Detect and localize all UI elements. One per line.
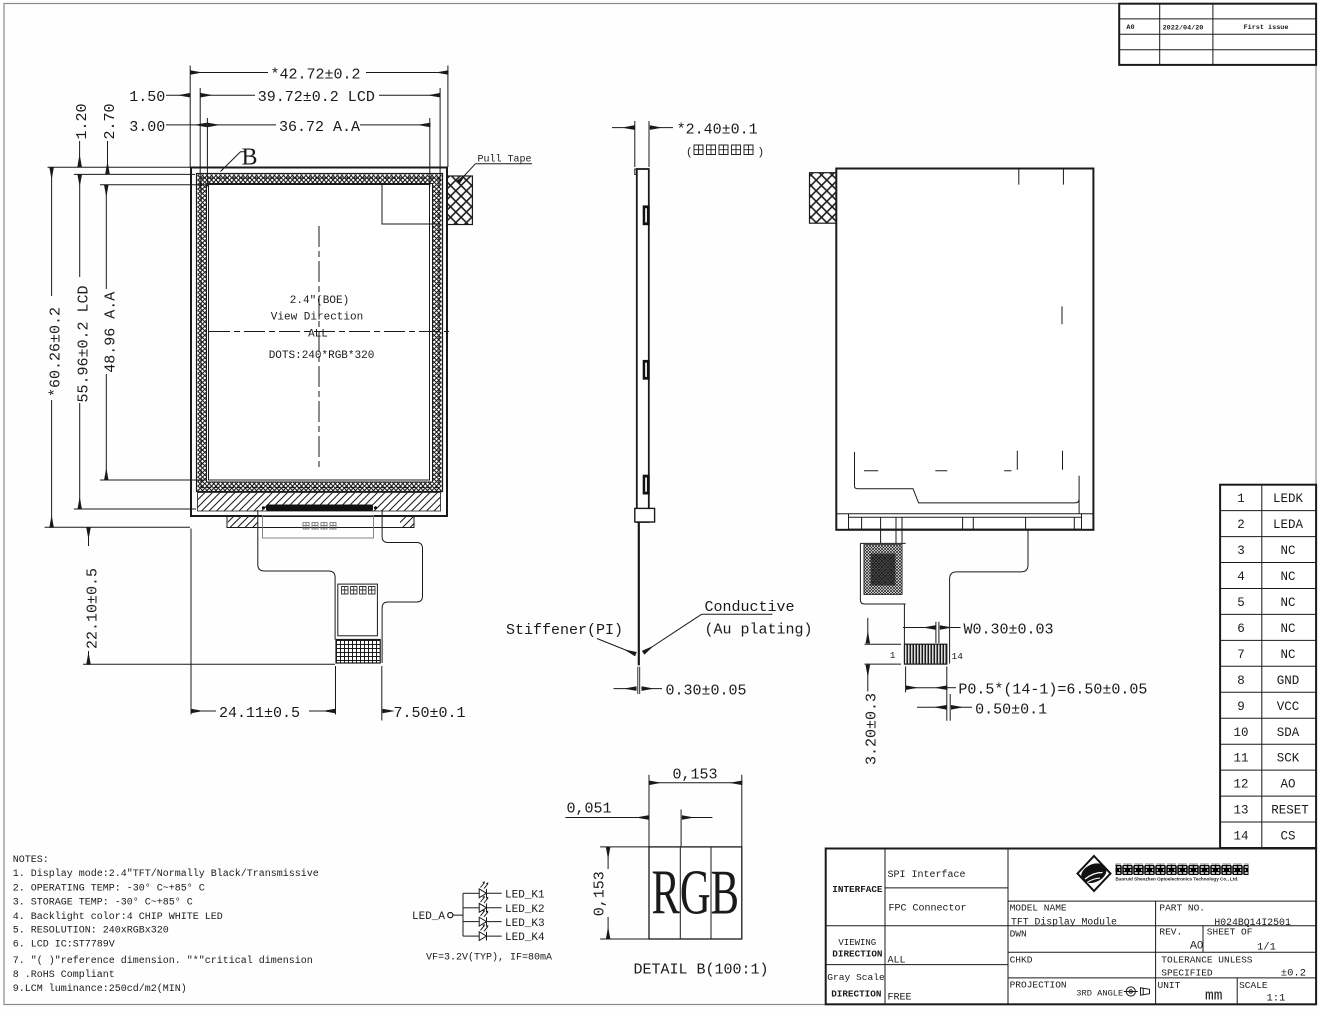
svg-text:SDA: SDA [1277, 726, 1300, 740]
svg-text:SHEET OF: SHEET OF [1207, 927, 1253, 938]
svg-text:9: 9 [1237, 700, 1245, 714]
svg-text:0,153: 0,153 [592, 871, 609, 916]
svg-text:NC: NC [1280, 622, 1295, 636]
svg-text:3.20±0.3: 3.20±0.3 [863, 693, 880, 765]
svg-text:NC: NC [1280, 648, 1295, 662]
svg-text:FREE: FREE [888, 992, 912, 1003]
svg-text:NC: NC [1280, 544, 1295, 558]
svg-text:*2.40±0.1: *2.40±0.1 [677, 122, 758, 139]
svg-text:NC: NC [1280, 570, 1295, 584]
svg-text:1.20: 1.20 [74, 103, 91, 139]
svg-text:UNIT: UNIT [1158, 980, 1181, 991]
svg-text:3: 3 [1237, 544, 1245, 558]
svg-text:48.96 A.A: 48.96 A.A [102, 292, 119, 373]
svg-text:8: 8 [1237, 674, 1245, 688]
svg-text:mm: mm [1205, 989, 1222, 1005]
svg-text:*42.72±0.2: *42.72±0.2 [271, 67, 361, 84]
svg-text:7. ″( )″reference dimension. ″: 7. ″( )″reference dimension. ″*″critical… [13, 955, 313, 967]
svg-text:3RD ANGLE: 3RD ANGLE [1076, 988, 1123, 998]
svg-text:(Au plating): (Au plating) [705, 622, 813, 639]
svg-text:5: 5 [1237, 596, 1245, 610]
svg-text:AO: AO [1280, 778, 1295, 792]
svg-text:TOLERANCE UNLESS: TOLERANCE UNLESS [1161, 955, 1253, 966]
svg-text:ALL: ALL [308, 329, 328, 341]
svg-text:DIRECTION: DIRECTION [832, 949, 882, 960]
svg-text:View Direction: View Direction [271, 312, 363, 324]
svg-text:PART NO.: PART NO. [1159, 903, 1205, 914]
svg-text:2.4″(BOE): 2.4″(BOE) [290, 295, 349, 307]
svg-text:GND: GND [1277, 674, 1300, 688]
svg-text:LED_K2: LED_K2 [505, 904, 545, 916]
svg-text:VF=3.2V(TYP), IF=80mA: VF=3.2V(TYP), IF=80mA [426, 952, 552, 964]
svg-text:PROJECTION: PROJECTION [1010, 980, 1067, 991]
svg-text:9.LCM luminance:250cd/m2(MIN): 9.LCM luminance:250cd/m2(MIN) [13, 983, 187, 995]
svg-text:RGB: RGB [652, 858, 740, 928]
svg-text:): ) [758, 147, 765, 159]
svg-text:36.72 A.A: 36.72 A.A [279, 119, 360, 136]
svg-text:2022/04/20: 2022/04/20 [1163, 24, 1204, 32]
svg-text:8 .RoHS Compliant: 8 .RoHS Compliant [13, 969, 115, 981]
svg-text:5. RESOLUTION: 240xRGBx320: 5. RESOLUTION: 240xRGBx320 [13, 926, 169, 937]
svg-text:P0.5*(14-1)=6.50±0.05: P0.5*(14-1)=6.50±0.05 [958, 682, 1147, 699]
svg-text:1: 1 [890, 650, 896, 661]
svg-text:11: 11 [1233, 752, 1248, 766]
svg-text:1. Display mode:2.4″TFT/Normal: 1. Display mode:2.4″TFT/Normally Black/T… [13, 868, 319, 880]
svg-text:CS: CS [1280, 830, 1295, 844]
svg-text:ALL: ALL [888, 955, 906, 966]
svg-text:Conductive: Conductive [705, 599, 795, 616]
svg-text:First issue: First issue [1244, 24, 1289, 32]
svg-text:DWN: DWN [1010, 929, 1027, 940]
svg-text:12: 12 [1233, 778, 1248, 792]
svg-text:Gray Scale: Gray Scale [827, 972, 885, 983]
svg-text:W0.30±0.03: W0.30±0.03 [964, 622, 1054, 639]
svg-text:14: 14 [1233, 830, 1248, 844]
svg-text:10: 10 [1233, 726, 1248, 740]
svg-text:1: 1 [1237, 492, 1245, 506]
svg-text:0.50±0.1: 0.50±0.1 [975, 701, 1047, 718]
svg-text:B: B [242, 145, 258, 171]
svg-text:INTERFACE: INTERFACE [832, 884, 883, 895]
svg-text:2. OPERATING TEMP: -30° C~+85°: 2. OPERATING TEMP: -30° C~+85° C [13, 882, 205, 894]
svg-text:REV.: REV. [1159, 927, 1182, 938]
svg-text:LED_K1: LED_K1 [505, 890, 545, 902]
svg-text:SCALE: SCALE [1239, 980, 1268, 991]
svg-text:*60.26±0.2: *60.26±0.2 [48, 307, 65, 397]
svg-text:7.50±0.1: 7.50±0.1 [394, 705, 466, 722]
svg-text:LEDA: LEDA [1273, 518, 1304, 532]
svg-text:6. LCD IC:ST7789V: 6. LCD IC:ST7789V [13, 940, 115, 951]
svg-text:Baoruid Shenzhen Optoelectroni: Baoruid Shenzhen Optoelectronics Technol… [1116, 877, 1239, 882]
svg-text:TFT Display Module: TFT Display Module [1011, 916, 1117, 927]
svg-text:LED_K4: LED_K4 [505, 932, 545, 944]
svg-text:(: ( [686, 147, 693, 159]
svg-text:DOTS:240*RGB*320: DOTS:240*RGB*320 [269, 350, 375, 362]
svg-text:DIRECTION: DIRECTION [831, 988, 881, 999]
svg-text:1/1: 1/1 [1257, 942, 1276, 954]
svg-text:Stiffener(PI): Stiffener(PI) [506, 622, 623, 639]
svg-text:1.50: 1.50 [129, 89, 165, 106]
svg-text:MODEL NAME: MODEL NAME [1010, 903, 1067, 914]
svg-text:2.70: 2.70 [102, 103, 119, 139]
svg-text:6: 6 [1237, 622, 1245, 636]
svg-text:SPECIFIED: SPECIFIED [1161, 967, 1213, 978]
svg-text:55.96±0.2 LCD: 55.96±0.2 LCD [76, 285, 93, 402]
svg-text:4. Backlight color:4 CHIP WHIT: 4. Backlight color:4 CHIP WHITE LED [13, 911, 223, 923]
svg-text:2: 2 [1237, 518, 1245, 532]
svg-text:0,051: 0,051 [567, 801, 612, 818]
svg-text:A0: A0 [1126, 24, 1134, 32]
svg-text:3. STORAGE TEMP: -30° C~+85° C: 3. STORAGE TEMP: -30° C~+85° C [13, 897, 193, 909]
svg-text:22.10±0.5: 22.10±0.5 [84, 568, 101, 649]
svg-text:SCK: SCK [1277, 752, 1300, 766]
svg-text:13: 13 [1233, 804, 1248, 818]
svg-text:A0: A0 [1190, 940, 1203, 952]
svg-text:14: 14 [952, 651, 964, 662]
svg-text:0.30±0.05: 0.30±0.05 [666, 683, 747, 700]
svg-text:4: 4 [1237, 570, 1245, 584]
svg-text:1:1: 1:1 [1267, 993, 1286, 1005]
svg-text:NC: NC [1280, 596, 1295, 610]
svg-text:±0.2: ±0.2 [1281, 968, 1306, 980]
svg-text:VIEWING: VIEWING [838, 938, 876, 948]
svg-text:0,153: 0,153 [673, 767, 718, 784]
svg-text:24.11±0.5: 24.11±0.5 [219, 705, 300, 722]
svg-text:CHKD: CHKD [1010, 954, 1033, 965]
svg-text:7: 7 [1237, 648, 1245, 662]
svg-text:RESET: RESET [1271, 804, 1309, 818]
svg-text:LED_A: LED_A [412, 911, 445, 923]
svg-text:SPI Interface: SPI Interface [888, 869, 966, 881]
svg-text:LEDK: LEDK [1273, 492, 1304, 506]
svg-text:NOTES:: NOTES: [13, 855, 49, 866]
svg-text:DETAIL B(100:1): DETAIL B(100:1) [634, 962, 769, 979]
svg-text:VCC: VCC [1277, 700, 1300, 714]
svg-text:3.00: 3.00 [129, 119, 165, 136]
svg-text:FPC Connector: FPC Connector [889, 903, 967, 914]
svg-text:39.72±0.2 LCD: 39.72±0.2 LCD [258, 89, 375, 106]
svg-text:LED_K3: LED_K3 [505, 918, 545, 930]
